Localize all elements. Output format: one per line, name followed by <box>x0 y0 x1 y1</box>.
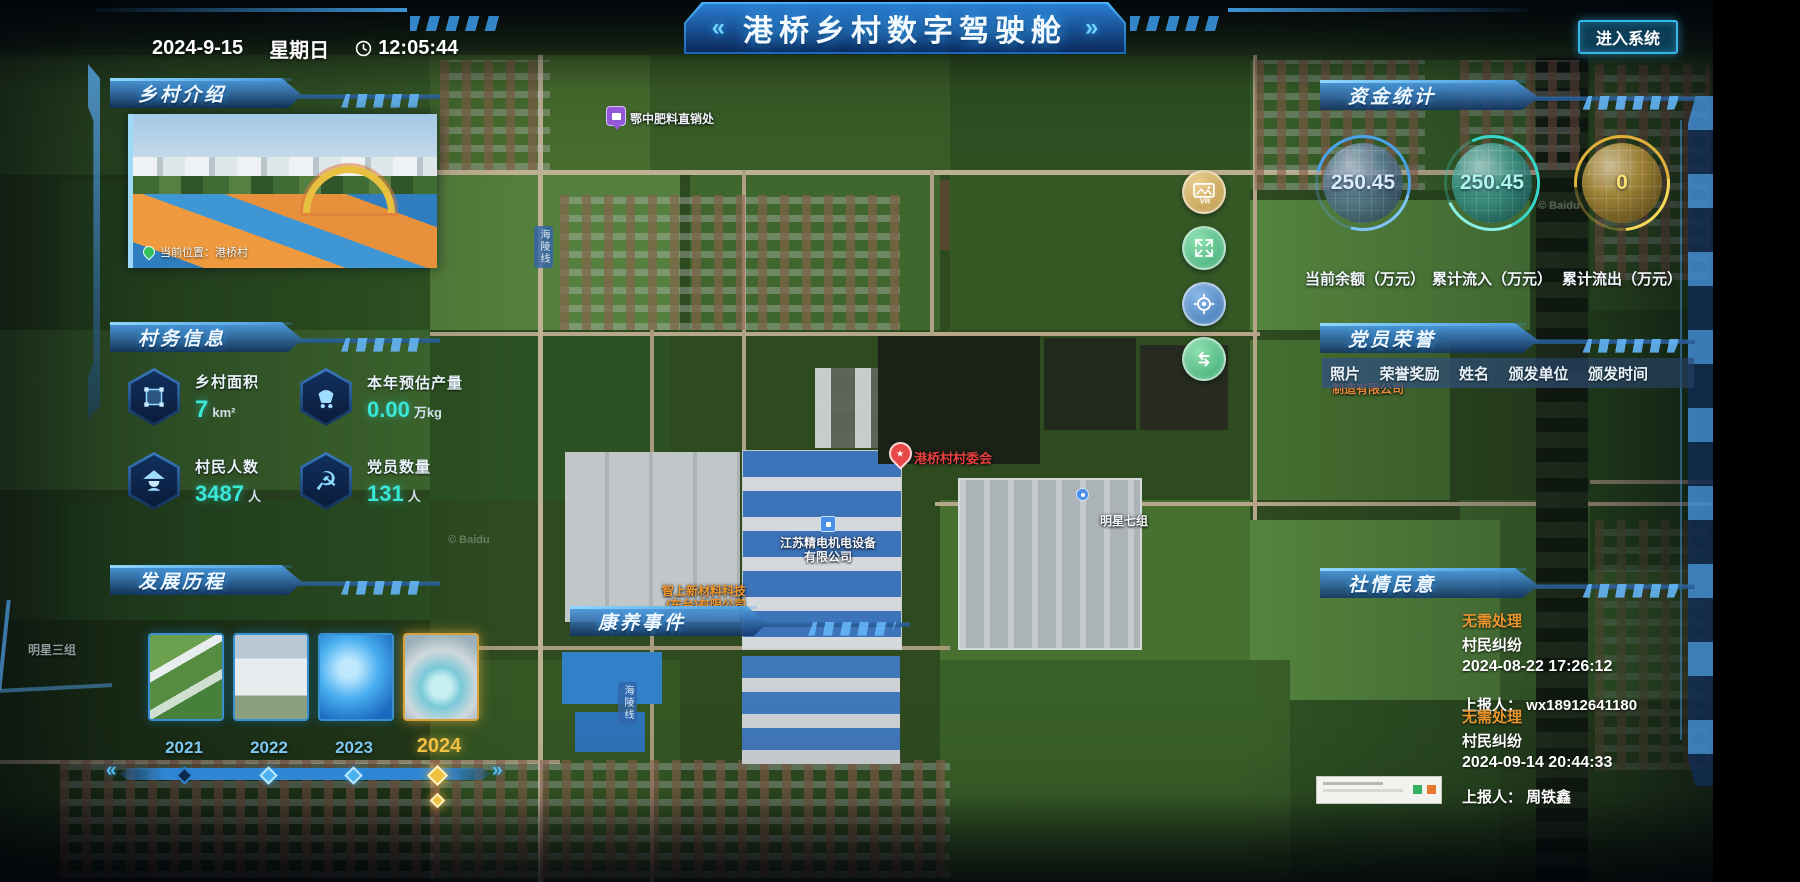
header-stripes-left <box>410 16 502 31</box>
header-hatch-decoration <box>808 622 896 636</box>
honors-col-award: 荣誉奖励 <box>1379 363 1439 384</box>
honors-panel-header: 党员荣誉 <box>1320 323 1695 353</box>
sentiment-panel-title: 社情民意 <box>1348 570 1436 597</box>
sentiment-item-1[interactable]: 无需处理 村民纠纷 2024-08-22 17:26:12 上报人： wx189… <box>1462 610 1637 715</box>
stat-unit: 人 <box>408 489 421 504</box>
gauge-label-inflow: 累计流入（万元） <box>1417 268 1567 289</box>
page-title: 港桥乡村数字驾驶舱 <box>743 6 1067 50</box>
stat-value: 7 <box>195 396 208 423</box>
history-panel-header: 发展历程 <box>110 565 440 595</box>
map-houses <box>440 60 550 170</box>
map-label-factory1: 有限公司 <box>768 548 888 565</box>
road-name-badge: 海陵线 <box>534 226 553 268</box>
layer-swap-button[interactable] <box>1182 337 1226 381</box>
sentiment-reporter: 上报人： 周铁鑫 <box>1462 786 1612 807</box>
stat-hexagon: ☭ <box>300 452 352 510</box>
honors-col-issuer: 颁发单位 <box>1508 363 1568 384</box>
vr-image-icon: VR <box>1192 180 1216 204</box>
svg-text:VR: VR <box>1200 196 1211 204</box>
map-label-group7: 明星七组 <box>1100 512 1148 529</box>
clock-icon <box>355 40 372 57</box>
photo-location-badge: 当前位置：港桥村 <box>143 244 248 260</box>
vr-view-button[interactable]: VR <box>1182 170 1226 214</box>
map-blue-pond <box>562 652 662 704</box>
year-2024[interactable]: 2024 <box>403 735 475 758</box>
timeline-prev-arrow[interactable]: « <box>106 760 117 782</box>
factory-pin-icon[interactable] <box>820 516 836 532</box>
health-panel-title: 康养事件 <box>598 608 686 635</box>
map-dark-pond <box>1044 338 1136 430</box>
map-warehouse <box>958 478 1142 650</box>
year-2021[interactable]: 2021 <box>148 738 220 758</box>
stat-value: 3487 <box>195 481 244 506</box>
header-bar-left <box>95 8 407 12</box>
history-thumb-2022[interactable] <box>233 633 309 721</box>
stat-unit: 万kg <box>414 405 442 420</box>
map-label-fertilizer: 鄂中肥料直销处 <box>630 110 714 127</box>
year-2023[interactable]: 2023 <box>318 738 390 758</box>
map-watermark: © Baidu <box>448 534 490 546</box>
gauge-label-outflow: 累计流出（万元） <box>1547 268 1697 289</box>
gauge-value: 0 <box>1574 135 1670 231</box>
header-hatch-decoration <box>1583 584 1681 598</box>
gauge-value: 250.45 <box>1444 135 1540 231</box>
stat-value: 0.00 <box>367 397 410 422</box>
gauge-total-inflow: 250.45 <box>1444 135 1540 231</box>
mail-pin-icon[interactable] <box>606 106 626 126</box>
stat-label: 本年预估产量 <box>367 372 463 393</box>
honors-table-header: 照片 荣誉奖励 姓名 颁发单位 颁发时间 <box>1322 358 1694 388</box>
sentiment-panel-header: 社情民意 <box>1320 568 1695 598</box>
stat-hexagon <box>300 368 352 426</box>
header-hatch-decoration <box>1583 96 1681 110</box>
header-bar-right <box>1228 8 1528 12</box>
current-time: 12:05:44 <box>378 37 458 60</box>
gauge-current-balance: 250.45 <box>1315 135 1411 231</box>
location-pin-icon <box>141 244 158 261</box>
affairs-panel-header: 村务信息 <box>110 322 440 352</box>
expand-icon <box>1193 237 1215 259</box>
villager-icon <box>140 467 168 495</box>
stat-villager-count: 村民人数 3487人 <box>128 452 261 510</box>
header-hatch-decoration <box>341 94 427 108</box>
right-frame-decoration <box>1688 96 1713 786</box>
intro-panel-title: 乡村介绍 <box>138 80 226 107</box>
stat-unit: km² <box>212 405 235 420</box>
map-blue-halls <box>742 656 900 764</box>
enter-system-button[interactable]: 进入系统 <box>1578 20 1678 54</box>
health-panel-header[interactable]: 康养事件 <box>570 606 910 636</box>
history-thumb-2024[interactable] <box>403 633 479 721</box>
target-icon <box>1193 293 1215 315</box>
history-thumb-2021[interactable] <box>148 633 224 721</box>
sentiment-category: 村民纠纷 <box>1462 634 1637 655</box>
header-hatch-decoration <box>341 581 427 595</box>
map-label-committee: 港桥村村委会 <box>914 448 992 467</box>
gauge-value: 250.45 <box>1315 135 1411 231</box>
datetime-group: 2024-9-15 星期日 12:05:44 <box>152 34 458 63</box>
party-icon: ☭ <box>314 468 337 494</box>
funds-panel-header: 资金统计 <box>1320 80 1695 110</box>
year-2022[interactable]: 2022 <box>233 738 305 758</box>
road-name-badge: 海陵线 <box>618 682 637 724</box>
honors-panel-title: 党员荣誉 <box>1348 325 1436 352</box>
stat-value: 131 <box>367 481 404 506</box>
stat-party-member-count: ☭ 党员数量 131人 <box>300 452 431 510</box>
current-date: 2024-9-15 <box>152 37 243 60</box>
area-icon <box>140 383 168 411</box>
cart-icon <box>312 383 340 411</box>
header-hatch-decoration <box>341 338 427 352</box>
swap-arrows-icon <box>1193 348 1215 370</box>
honors-col-date: 颁发时间 <box>1588 363 1648 384</box>
dashboard-screen: 鄂中肥料直销处 ★ 港桥村村委会 江苏精电机电设备 有限公司 智上新材料科技 (… <box>0 0 1713 882</box>
stat-label: 党员数量 <box>367 456 431 477</box>
timeline-next-arrow[interactable]: » <box>492 760 503 782</box>
title-chevron-right-icon: » <box>1085 14 1098 42</box>
sentiment-attachment-thumb[interactable] <box>1316 776 1442 804</box>
fullscreen-button[interactable] <box>1182 226 1226 270</box>
stat-label: 乡村面积 <box>195 371 259 392</box>
map-houses <box>560 195 900 330</box>
current-weekday: 星期日 <box>269 34 329 63</box>
header-hatch-decoration <box>1583 339 1681 353</box>
stat-label: 村民人数 <box>195 456 261 477</box>
sentiment-status: 无需处理 <box>1462 706 1612 727</box>
header-stripes-right <box>1130 16 1222 31</box>
stat-unit: 人 <box>248 489 261 504</box>
affairs-panel-title: 村务信息 <box>138 324 226 351</box>
group7-pin-icon[interactable] <box>1076 488 1089 501</box>
history-thumb-2023[interactable] <box>318 633 394 721</box>
honors-col-name: 姓名 <box>1459 363 1489 384</box>
gauge-total-outflow: 0 <box>1574 135 1670 231</box>
title-banner: « 港桥乡村数字驾驶舱 » <box>684 2 1126 54</box>
sentiment-category: 村民纠纷 <box>1462 730 1612 751</box>
locate-button[interactable] <box>1182 282 1226 326</box>
history-panel-title: 发展历程 <box>138 567 226 594</box>
funds-panel-title: 资金统计 <box>1348 82 1436 109</box>
sentiment-status: 无需处理 <box>1462 610 1637 631</box>
map-label-group3: 明星三组 <box>28 641 76 658</box>
sentiment-time: 2024-09-14 20:44:33 <box>1462 754 1612 772</box>
village-photo[interactable]: 当前位置：港桥村 <box>128 114 437 268</box>
map-houses <box>430 760 950 878</box>
right-frame-decoration <box>1680 120 1682 740</box>
sentiment-time: 2024-08-22 17:26:12 <box>1462 658 1637 676</box>
stat-hexagon <box>128 368 180 426</box>
stat-hexagon <box>128 452 180 510</box>
stat-village-area: 乡村面积 7km² <box>128 368 259 426</box>
honors-col-photo: 照片 <box>1330 363 1360 384</box>
intro-panel-header: 乡村介绍 <box>110 78 440 108</box>
stat-estimated-output: 本年预估产量 0.00万kg <box>300 368 463 426</box>
sentiment-item-2[interactable]: 无需处理 村民纠纷 2024-09-14 20:44:33 上报人： 周铁鑫 <box>1462 706 1612 807</box>
title-chevron-left-icon: « <box>712 14 725 42</box>
